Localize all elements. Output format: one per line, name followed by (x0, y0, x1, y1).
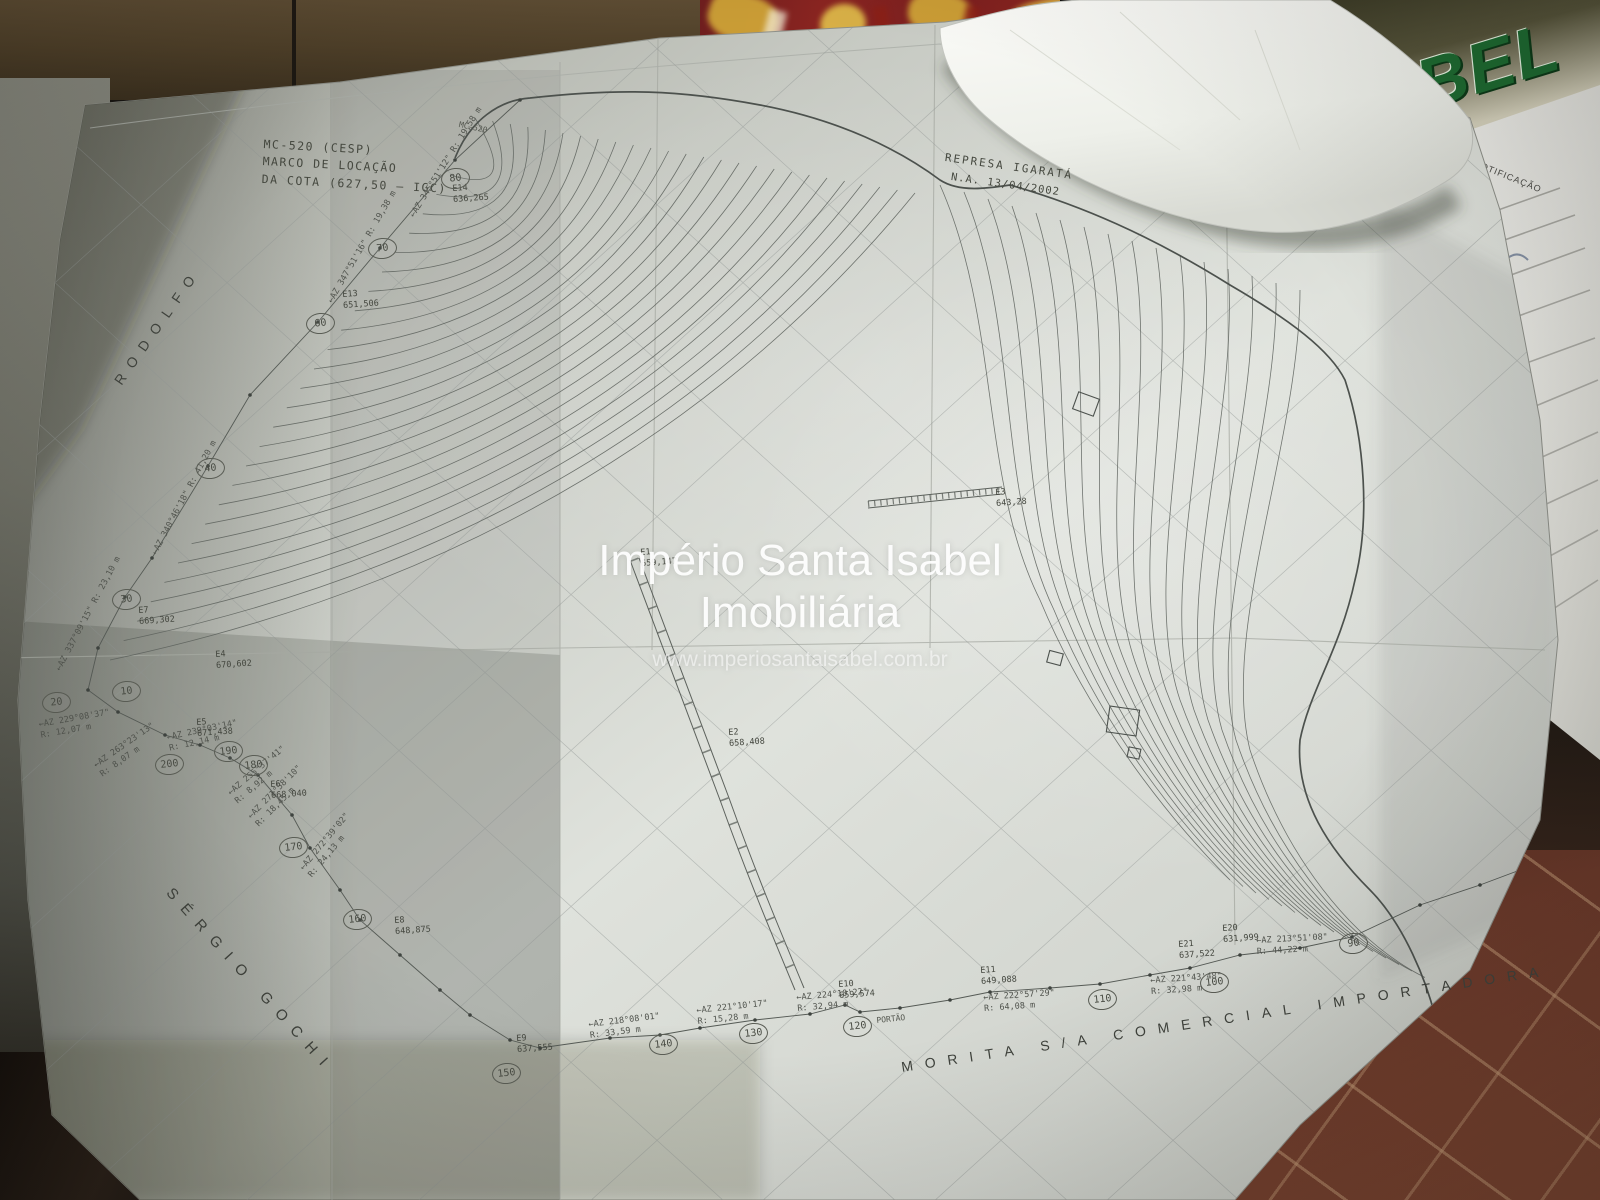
watermark: Império Santa Isabel Imobiliária www.imp… (560, 536, 1040, 672)
watermark-line1: Império Santa Isabel (560, 536, 1040, 586)
photo-of-survey-map: ABEL (11) 4656 NOTIFICAÇÃO DADOS PROPRIE… (0, 0, 1600, 1200)
watermark-line2: Imobiliária (560, 588, 1040, 638)
watermark-url: www.imperiosantaisabel.com.br (560, 648, 1040, 672)
